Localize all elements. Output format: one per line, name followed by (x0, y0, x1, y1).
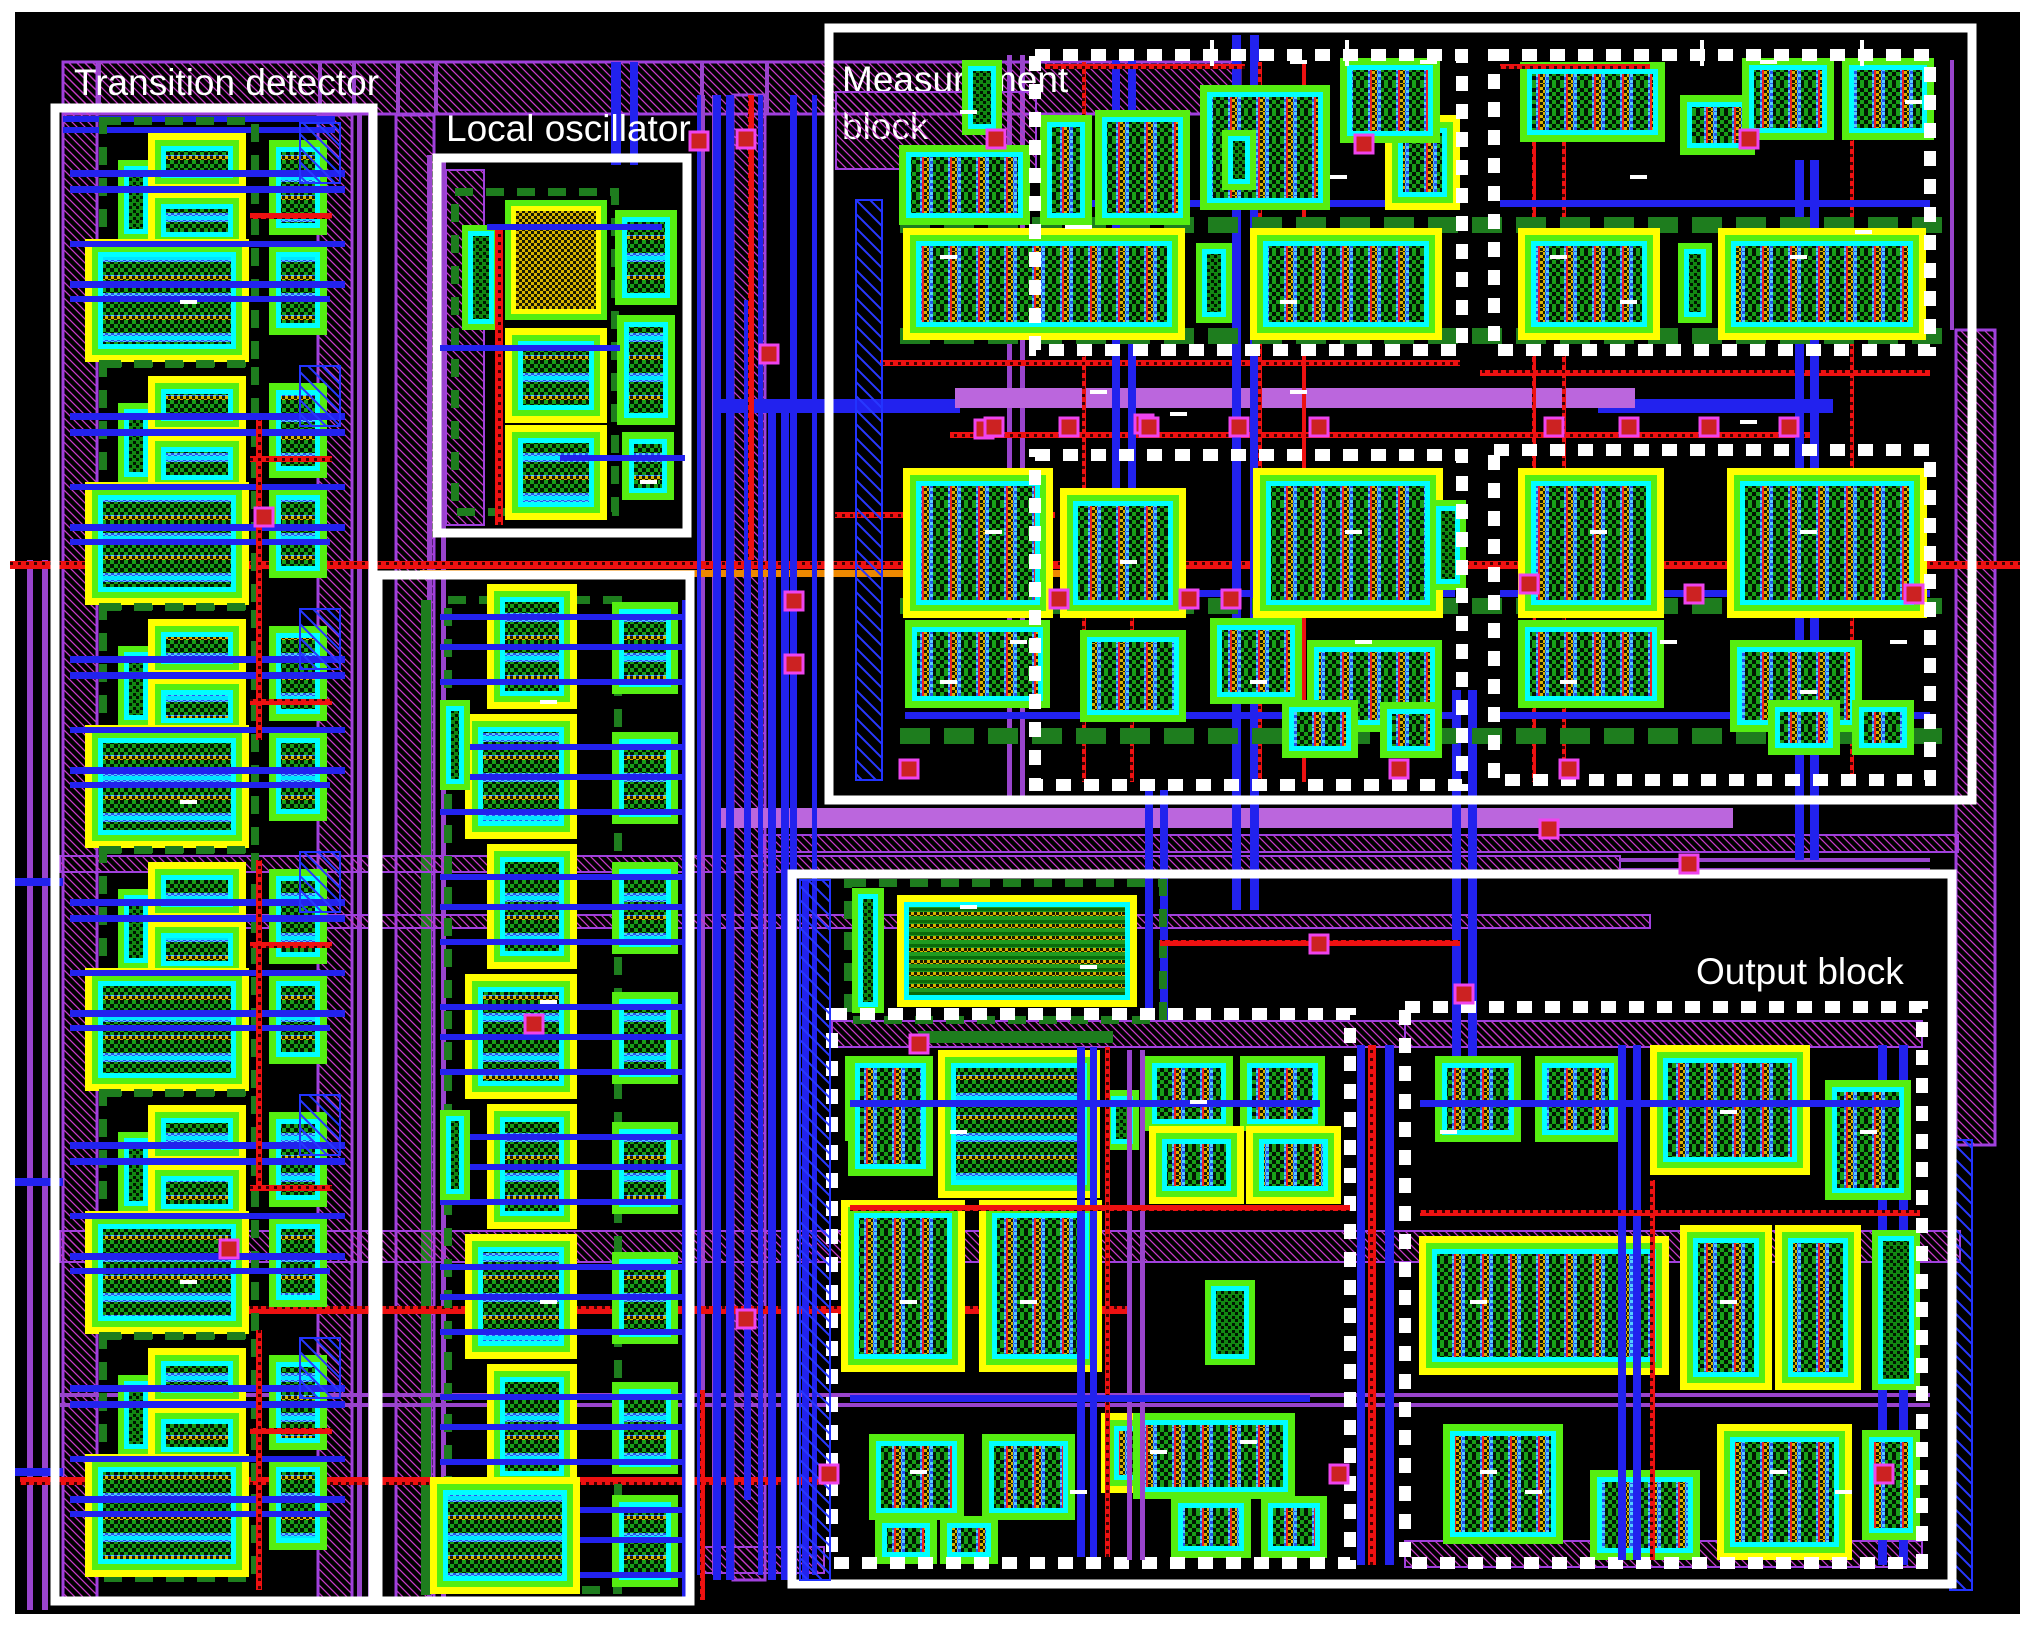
svg-text:Transition detector: Transition detector (74, 62, 379, 103)
svg-text:Local oscillator: Local oscillator (446, 108, 691, 149)
svg-text:Output block: Output block (1696, 951, 1904, 992)
